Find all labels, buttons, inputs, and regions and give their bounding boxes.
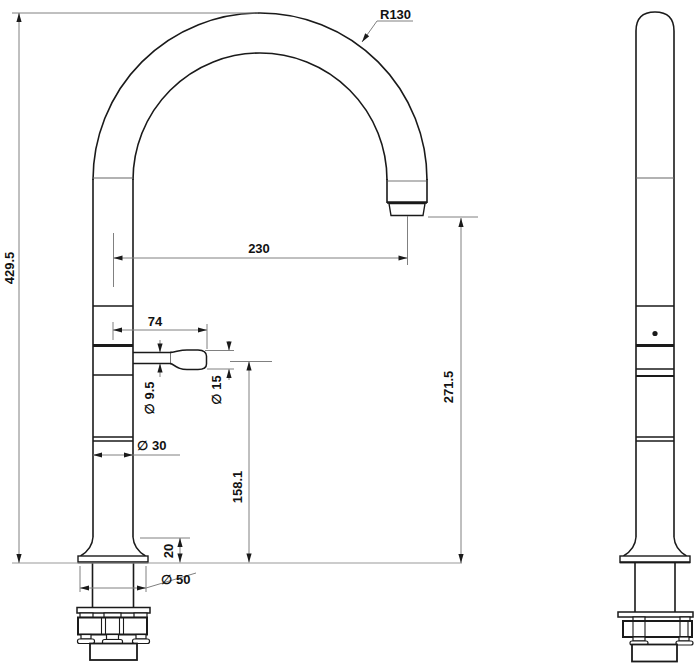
dim-label-handle-length: 74 <box>148 314 163 329</box>
dim-label-handle-height: 158.1 <box>230 471 245 504</box>
spout-outer-arc <box>93 13 427 180</box>
aerator <box>389 204 425 216</box>
dim-label-body-diameter: ∅ 30 <box>137 438 166 453</box>
spout-outlet <box>387 179 427 216</box>
supply-block <box>90 644 137 661</box>
handle-knob <box>171 350 207 370</box>
dim-label-total-height: 429.5 <box>2 252 17 285</box>
dim-label-stem-diameter: ∅ 9.5 <box>142 381 157 414</box>
dim-outlet-height: 271.5 <box>428 217 478 563</box>
dim-label-spout-reach: 230 <box>248 241 270 256</box>
dim-label-knob-diameter: ∅ 15 <box>209 375 224 404</box>
dim-label-base-height: 20 <box>161 544 176 558</box>
washer-plate <box>77 608 150 614</box>
side-base-flange <box>620 537 690 563</box>
side-profile <box>636 12 674 537</box>
dim-total-height: 429.5 <box>2 13 258 563</box>
dimensions: 429.5 R130 230 271.5 <box>2 7 478 592</box>
dim-spout-radius: R130 <box>362 7 413 42</box>
threaded-shank <box>93 563 134 608</box>
handle-stem <box>133 353 171 364</box>
dim-label-base-diameter: ∅ 50 <box>161 572 190 587</box>
handle-axis-dot <box>652 331 657 336</box>
dim-handle-height: 158.1 <box>230 362 272 563</box>
front-view <box>12 13 462 660</box>
base-flange <box>78 537 148 563</box>
spout-inner-arc <box>133 53 387 180</box>
dim-base-diameter: ∅ 50 <box>80 566 196 592</box>
mounting-nut-bar <box>78 618 147 635</box>
supply-block-side <box>632 645 677 662</box>
dim-label-outlet-height: 271.5 <box>441 371 456 404</box>
faucet-technical-drawing: 429.5 R130 230 271.5 <box>0 0 697 663</box>
mounting-hardware-front <box>77 563 150 660</box>
dim-stem-diameter: ∅ 9.5 <box>142 340 163 415</box>
handle <box>133 350 207 370</box>
body-pipe <box>93 178 133 537</box>
washer-plate-side <box>618 612 693 617</box>
dim-spout-reach: 230 <box>114 216 408 287</box>
side-view <box>618 12 693 662</box>
spout-arc <box>93 13 427 180</box>
mounting-hardware-side <box>618 563 693 662</box>
dim-knob-diameter: ∅ 15 <box>205 341 234 405</box>
dim-label-spout-radius: R130 <box>380 7 411 22</box>
